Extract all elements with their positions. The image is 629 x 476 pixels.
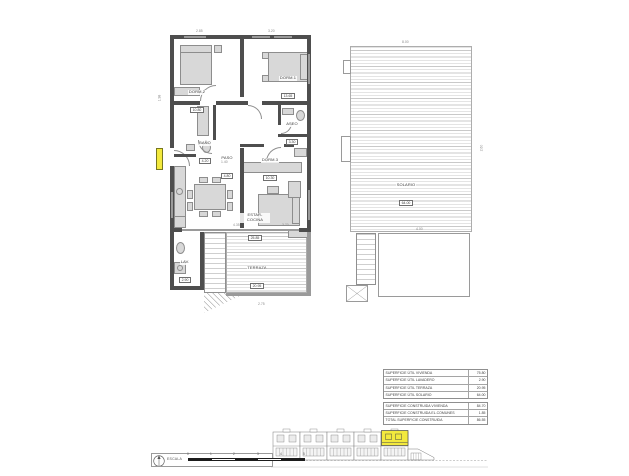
scale-segment <box>235 459 258 460</box>
table-row-label: SUPERFICIE ÚTIL LAVADERO <box>384 377 468 383</box>
elevation-unit <box>273 429 300 460</box>
room-name: ASEO <box>286 122 299 127</box>
dimension-text: 3.70 <box>282 223 289 227</box>
dimension-text: 2.60 <box>479 145 483 152</box>
room-name: TERRAZA <box>247 266 267 271</box>
room-area: 13.65 <box>281 93 294 99</box>
dimension-text: 2.75 <box>258 302 265 306</box>
scale-label: ESCALA <box>167 457 182 461</box>
window <box>308 190 311 220</box>
stair-landing <box>346 285 368 302</box>
room-label-aseo: ASEO 3.30 <box>284 112 300 149</box>
dimension-text: 8.00 <box>402 40 409 44</box>
armchair <box>288 181 301 198</box>
scale-tick: 4 <box>280 452 282 456</box>
scale-tick: 0 <box>187 452 189 456</box>
room-area: 25.85 <box>248 235 261 241</box>
room-name: DORM.3 <box>261 158 278 163</box>
nightstand <box>262 52 269 59</box>
table-row-label: SUPERFICIE ÚTIL TERRAZA <box>384 385 468 391</box>
room-name: ESTAR-COCINA <box>240 213 270 222</box>
room-area: 64.00 <box>399 200 412 206</box>
dimension-text: 1.98 <box>157 95 161 102</box>
room-label-bano: BAÑO 4.20 <box>197 131 213 168</box>
nightstand <box>262 75 269 82</box>
table-row-label: SUPERFICIE CONSTRUIDA VIVIENDA <box>384 403 468 409</box>
dimension-text: 4.00 <box>416 227 423 231</box>
graphic-scale-bar <box>188 458 305 461</box>
surface-area-table: SUPERFICIE ÚTIL VIVIENDA 75.80 SUPERFICI… <box>383 369 488 427</box>
table-row-value: 75.80 <box>468 370 488 376</box>
window <box>252 36 270 39</box>
room-label-terraza: TERRAZA 20.95 <box>242 256 272 293</box>
scale-segment <box>258 459 281 460</box>
elevation-unit <box>327 429 354 460</box>
chair <box>187 202 193 211</box>
room-name: BAÑO <box>199 141 212 146</box>
window <box>184 36 206 39</box>
useful-surface-group: SUPERFICIE ÚTIL VIVIENDA 75.80 SUPERFICI… <box>383 369 488 399</box>
terrace-parapet-right <box>307 232 311 296</box>
scale-tick: 2 <box>233 452 235 456</box>
room-label-paso: PASO 4.80 <box>219 146 235 183</box>
scale-tick: 5 <box>303 452 305 456</box>
solarium-stair <box>356 233 376 285</box>
room-name: DORM.1 <box>279 76 296 81</box>
table-row: SUPERFICIE CONSTRUIDA VIVIENDA 84.70 <box>384 403 487 409</box>
pillow <box>180 45 212 53</box>
site-elevation-drawing <box>271 426 489 468</box>
chair <box>199 211 208 217</box>
interior-stair <box>204 232 226 293</box>
table-row-value: 84.70 <box>468 403 488 409</box>
door-arc-entry <box>174 150 190 166</box>
room-label-dorm3: DORM.3 10.30 <box>258 148 282 185</box>
exterior-stair <box>204 293 246 313</box>
room-area: 2.90 <box>179 277 190 283</box>
table-row-value: 20.95 <box>468 385 488 391</box>
scale-segment <box>189 459 212 460</box>
electrical-panel-highlight <box>156 148 163 170</box>
coffee-table <box>267 186 279 194</box>
table-row-label: SUPERFICIE CONSTRUIDA EL.COMUNES <box>384 410 468 416</box>
room-area: 10.30 <box>263 175 276 181</box>
room-label-solario: SOLARIO 64.00 <box>390 173 422 210</box>
table-row: TOTAL SUPERFICIE CONSTRUIDA 86.55 <box>384 416 487 423</box>
nightstand <box>214 45 222 53</box>
scale-tick: 3 <box>257 452 259 456</box>
fridge <box>174 216 186 228</box>
chair <box>212 211 221 217</box>
chair <box>187 190 193 199</box>
room-area: 3.30 <box>286 139 297 145</box>
dresser <box>294 148 307 157</box>
highlighted-unit <box>382 431 409 446</box>
sink <box>186 144 195 151</box>
table-row-value: 1.85 <box>468 410 488 416</box>
deck-notch <box>343 60 351 74</box>
plan-sheet: DORM.2 10.80 DORM.1 13.65 ASEO 3.30 BAÑO… <box>0 0 629 476</box>
wall-mid-b <box>216 101 248 105</box>
elevation-annex <box>408 449 434 460</box>
chair <box>227 202 233 211</box>
table-row: SUPERFICIE ÚTIL SOLARIO 64.00 <box>384 391 487 398</box>
scale-segment <box>212 459 235 460</box>
wall-left-upper <box>170 35 174 148</box>
built-surface-group: SUPERFICIE CONSTRUIDA VIVIENDA 84.70 SUP… <box>383 402 488 425</box>
table-row: SUPERFICIE ÚTIL TERRAZA 20.95 <box>384 384 487 391</box>
wall-dorm3-top-a <box>240 144 264 147</box>
terrace-parapet-bottom <box>226 293 311 296</box>
table-row-value: 64.00 <box>468 392 488 398</box>
wall-laundry-right <box>200 232 204 290</box>
room-label-dorm1: DORM.1 13.65 <box>275 66 301 103</box>
dimension-text: 4.35 <box>233 223 240 227</box>
kitchen-sink <box>176 188 183 195</box>
room-area: 4.80 <box>221 173 232 179</box>
room-name: LAV. <box>180 260 189 265</box>
table-row-label: SUPERFICIE ÚTIL SOLARIO <box>384 392 468 398</box>
deck-notch <box>341 136 351 162</box>
room-name: SOLARIO <box>396 183 415 188</box>
dimension-text: 3.20 <box>268 29 275 33</box>
wall-dorm-divider <box>240 39 244 97</box>
lower-roof-outline <box>378 233 470 297</box>
table-row-value: 2.90 <box>468 377 488 383</box>
wall-slider-end-left <box>174 228 182 232</box>
table-row: SUPERFICIE ÚTIL VIVIENDA 75.80 <box>384 370 487 376</box>
room-area: 10.80 <box>190 107 203 113</box>
dining-table <box>194 184 226 210</box>
window <box>274 36 292 39</box>
wall-bath-right <box>213 105 216 140</box>
room-area: 20.95 <box>250 283 263 289</box>
pillow <box>292 196 300 224</box>
scale-tick: 1 <box>210 452 212 456</box>
chair <box>227 190 233 199</box>
dimension-text: 2.85 <box>196 29 203 33</box>
scale-segment <box>281 459 304 460</box>
wall-slider-end-right <box>299 228 311 232</box>
wall-bath-bottom <box>174 154 196 157</box>
room-name: DORM.2 <box>188 90 205 95</box>
table-row: SUPERFICIE ÚTIL LAVADERO 2.90 <box>384 376 487 383</box>
table-row: SUPERFICIE CONSTRUIDA EL.COMUNES 1.85 <box>384 409 487 416</box>
door-arc-dorm1 <box>248 105 262 119</box>
table-row-label: SUPERFICIE ÚTIL VIVIENDA <box>384 370 468 376</box>
window <box>308 54 311 84</box>
room-label-dorm2: DORM.2 10.80 <box>184 80 210 117</box>
table-row-value: 86.55 <box>468 417 488 423</box>
chair <box>199 177 208 183</box>
room-area: 4.20 <box>199 158 210 164</box>
wall-aseo-left <box>278 105 281 125</box>
elevation-unit <box>354 429 381 460</box>
dimension-text: 1.40 <box>221 160 228 164</box>
room-label-estar: ESTAR-COCINA 25.85 <box>240 208 270 245</box>
table-row-label: TOTAL SUPERFICIE CONSTRUIDA <box>384 417 468 423</box>
window <box>171 192 174 218</box>
room-label-lavadero: LAV. 2.90 <box>176 250 194 287</box>
